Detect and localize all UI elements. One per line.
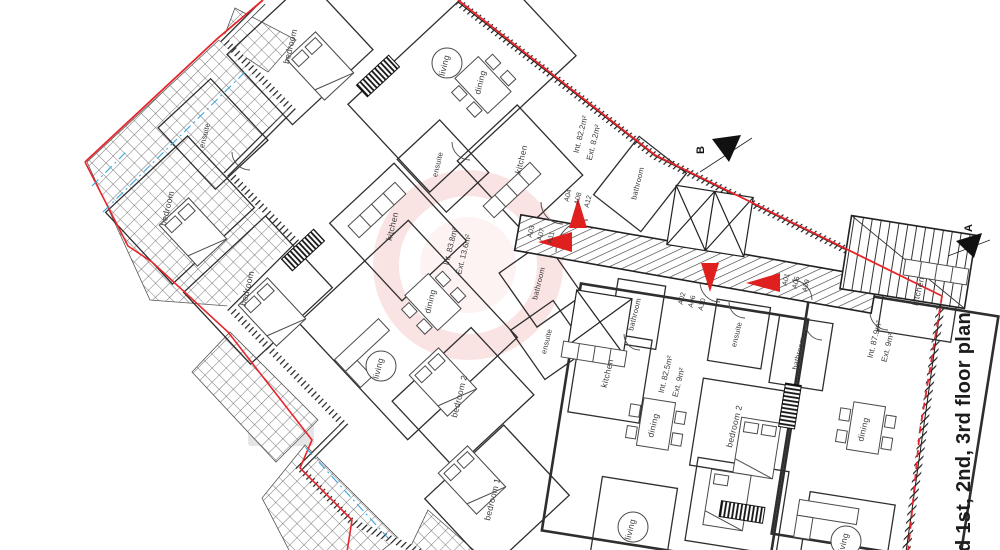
- bed: [733, 417, 781, 479]
- floor-plan-drawing: B A ensuite bedroom bedroom bedroom livi…: [0, 0, 1000, 550]
- bed: [703, 469, 751, 531]
- section-label-a: A: [963, 224, 975, 232]
- floor-plan-canvas: B A ensuite bedroom bedroom bedroom livi…: [0, 0, 1000, 550]
- section-label-b: B: [695, 146, 707, 154]
- sheet-title: d 1st, 2nd, 3rd floor plan: [953, 312, 975, 550]
